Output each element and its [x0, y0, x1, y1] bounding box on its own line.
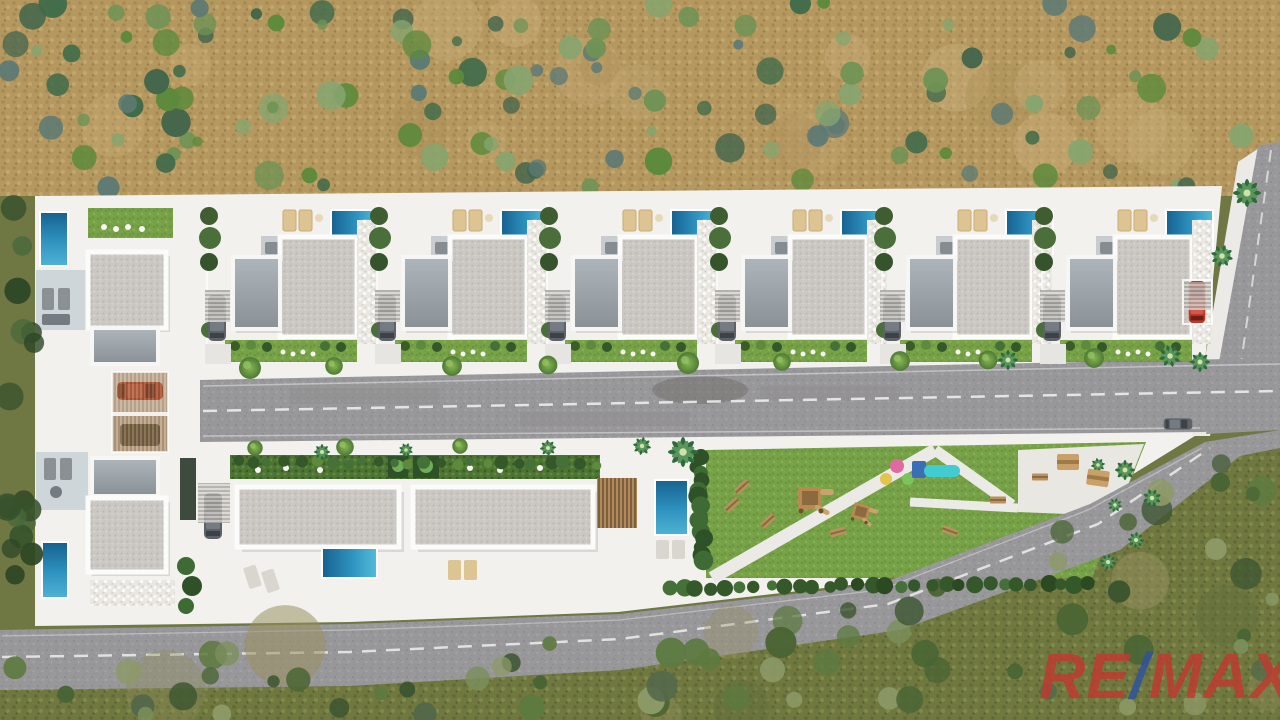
tree: [979, 351, 998, 370]
carport: [198, 483, 230, 523]
tree: [1084, 348, 1104, 368]
site-plan-svg: [0, 0, 1280, 720]
pool: [655, 480, 688, 535]
slide-tower: [912, 461, 926, 478]
palm: [668, 437, 698, 467]
tree: [890, 351, 910, 371]
table: [1057, 454, 1079, 470]
tree: [452, 438, 467, 453]
carport-pergola: [112, 416, 168, 452]
building-roof: [237, 487, 399, 547]
palm: [314, 444, 330, 460]
tree: [325, 357, 343, 375]
watermark-slash: /: [1130, 640, 1149, 712]
aerial-render: RE/MAX: [0, 0, 1280, 720]
play-ball: [880, 473, 892, 485]
pool: [322, 548, 377, 578]
tree: [442, 356, 462, 376]
tree: [239, 357, 261, 379]
tree: [247, 440, 262, 455]
bench: [990, 497, 1006, 504]
car-on-road: [1164, 418, 1193, 429]
villa-roof: [88, 252, 166, 328]
pergola: [597, 478, 637, 528]
play-ball: [890, 459, 904, 473]
villa-roof: [88, 498, 166, 572]
tree: [336, 438, 354, 456]
table: [1086, 469, 1110, 488]
bench: [1032, 474, 1048, 481]
pool: [40, 212, 68, 266]
building-roof: [413, 487, 593, 547]
palm: [1233, 179, 1261, 207]
carport-pergola: [112, 372, 168, 412]
remax-watermark: RE/MAX: [1039, 644, 1280, 708]
tree: [539, 356, 558, 375]
watermark-re: RE: [1039, 640, 1130, 712]
pool: [42, 542, 68, 598]
tree: [677, 352, 699, 374]
courtyard: [112, 372, 168, 452]
tree-shadow: [652, 376, 748, 404]
slide: [924, 465, 960, 477]
palm: [1115, 460, 1135, 480]
palm: [998, 350, 1018, 370]
tree: [773, 353, 791, 371]
watermark-max: MAX: [1149, 640, 1280, 712]
